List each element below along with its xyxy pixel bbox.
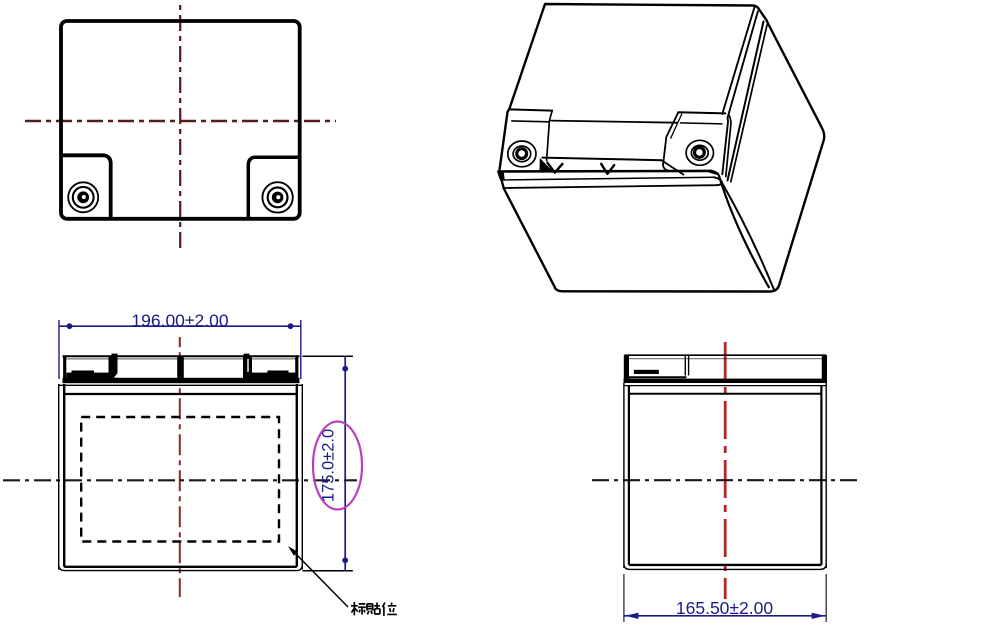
svg-text:196.00±2.00: 196.00±2.00 — [131, 310, 228, 330]
svg-text:175.0±2.0: 175.0±2.0 — [320, 429, 338, 502]
svg-text:165.50±2.00: 165.50±2.00 — [676, 598, 773, 618]
